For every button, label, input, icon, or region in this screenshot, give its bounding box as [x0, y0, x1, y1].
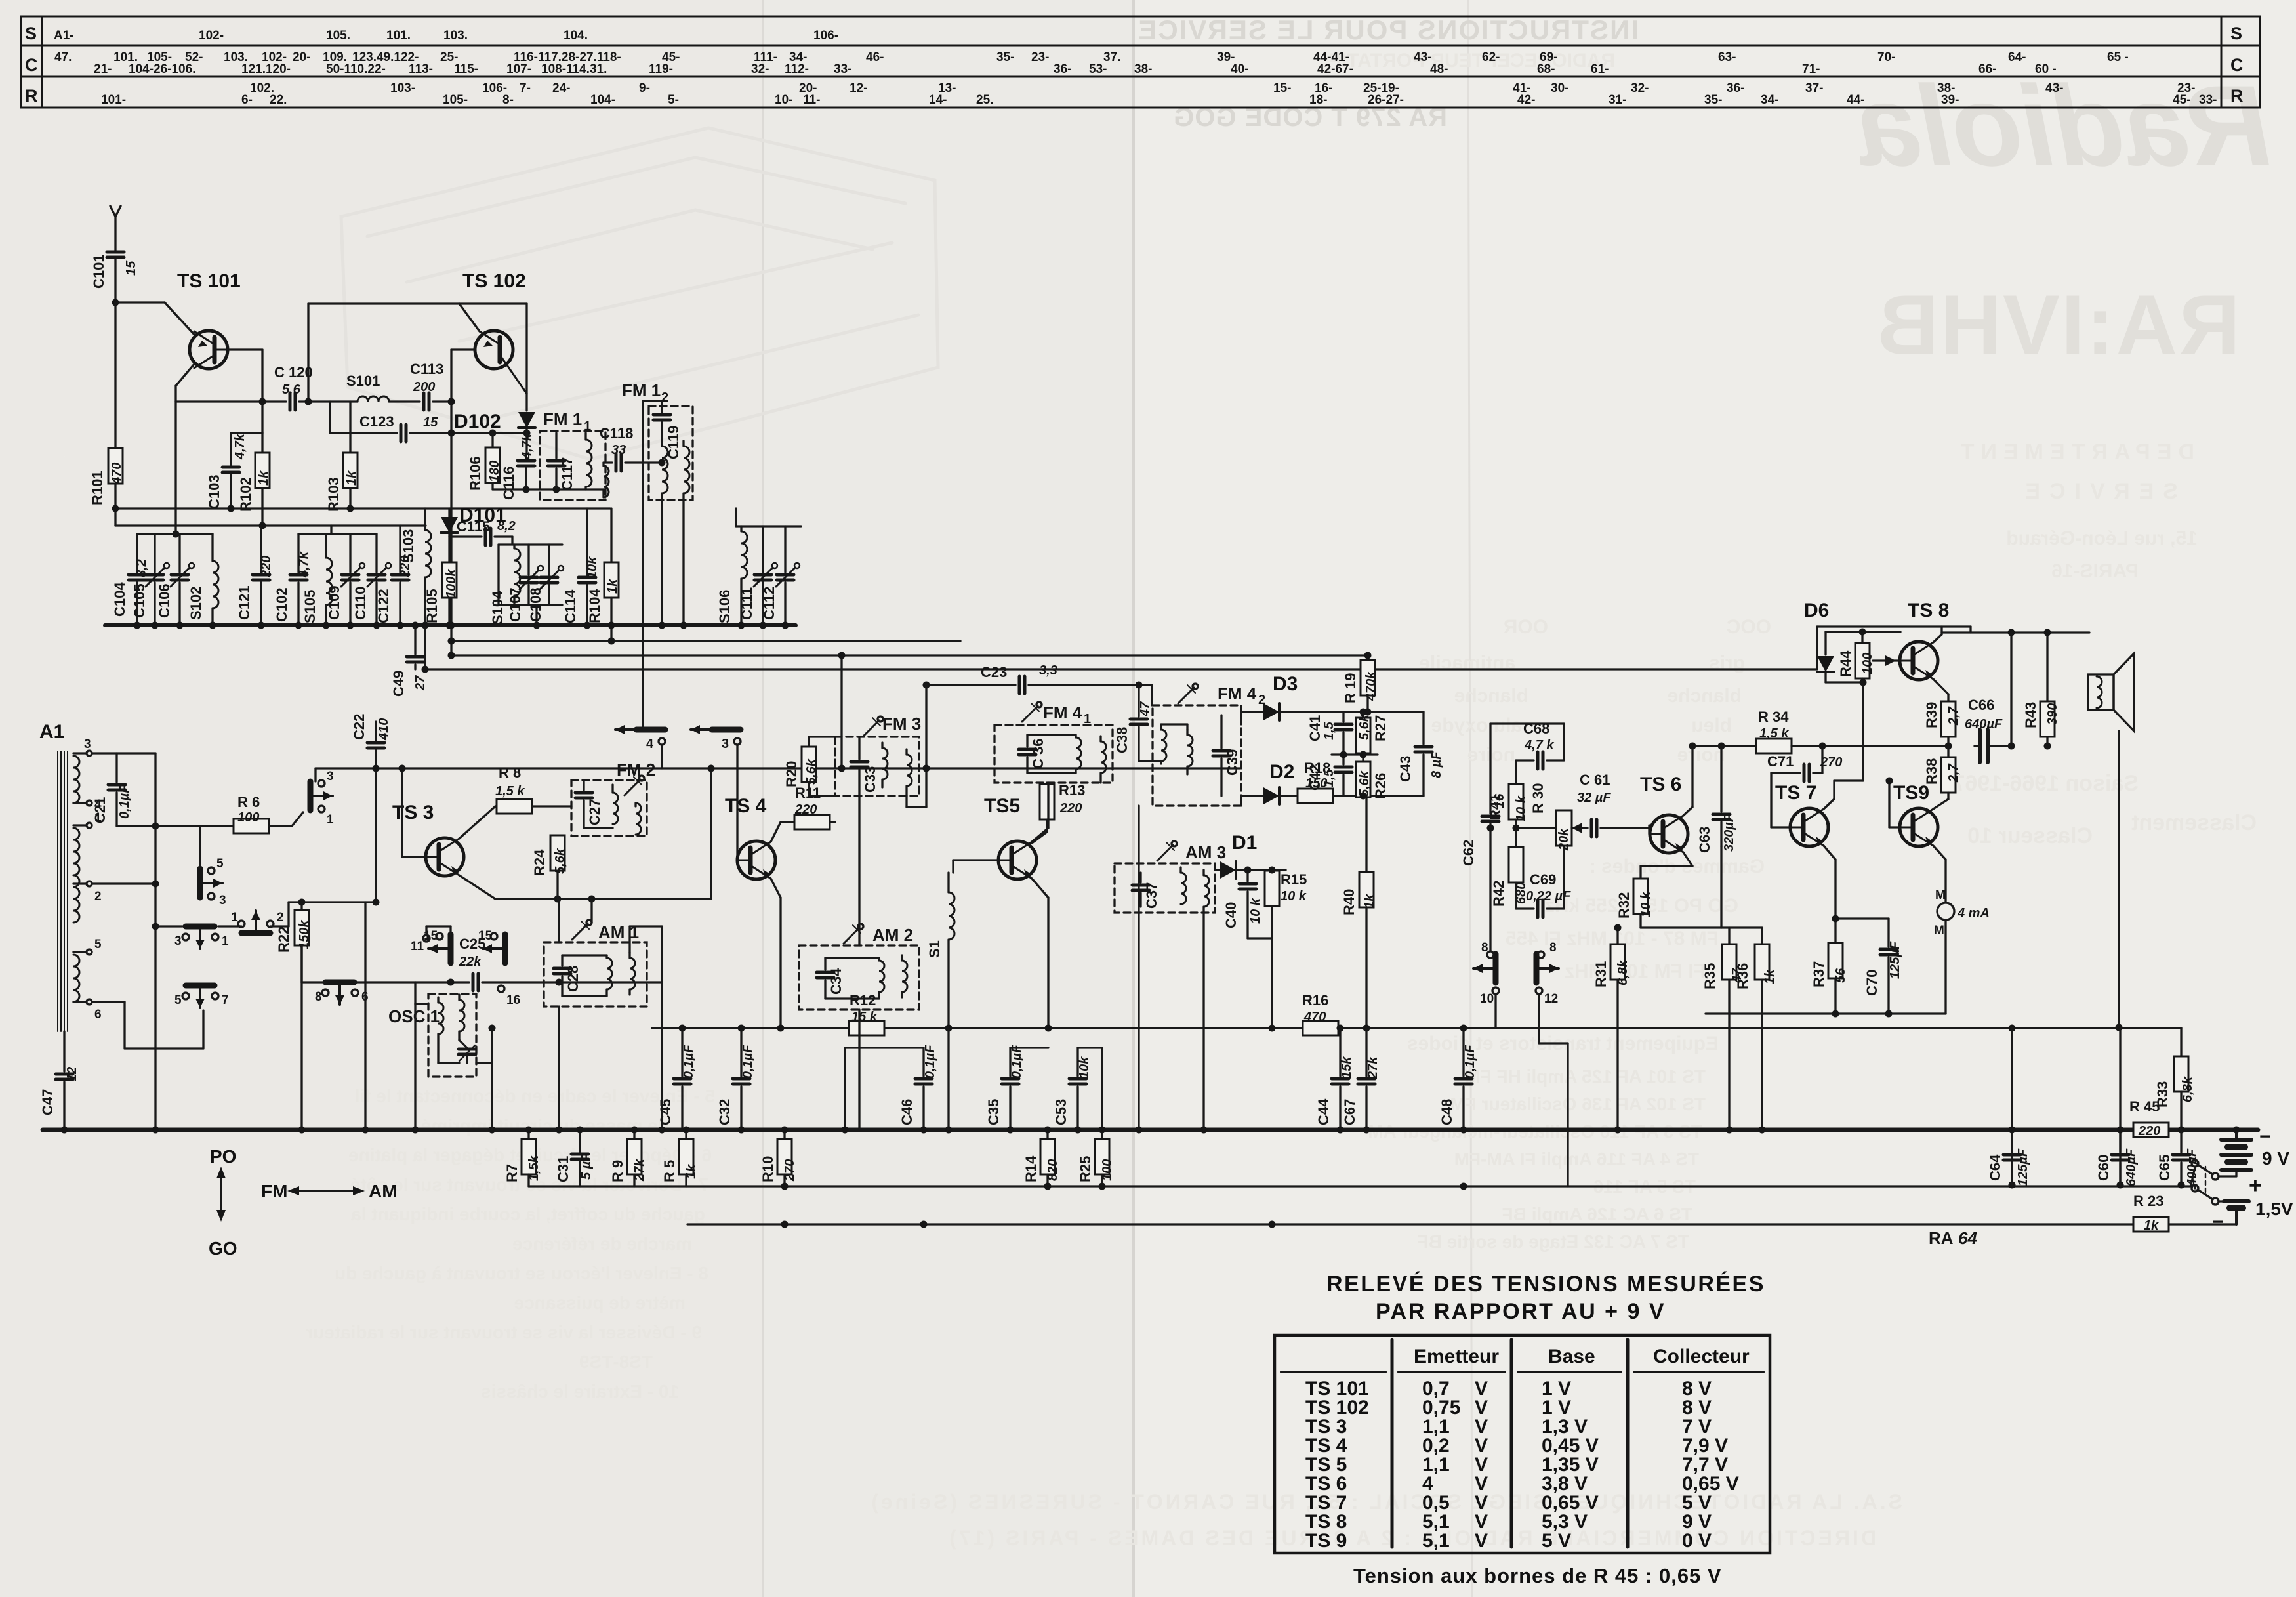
svg-text:PAR RAPPORT AU + 9 V: PAR RAPPORT AU + 9 V — [1376, 1299, 1666, 1324]
svg-text:1k: 1k — [344, 470, 359, 486]
svg-text:70-: 70- — [1877, 51, 1895, 64]
svg-text:104-26-106.: 104-26-106. — [129, 62, 195, 76]
svg-text:390: 390 — [2045, 703, 2060, 725]
svg-text:C62: C62 — [1460, 840, 1477, 866]
svg-text:1: 1 — [584, 419, 591, 434]
svg-text:200: 200 — [413, 380, 435, 394]
svg-text:C112: C112 — [761, 587, 777, 620]
svg-text:125µF: 125µF — [1888, 941, 1902, 979]
svg-text:47: 47 — [1138, 701, 1153, 717]
svg-text:10 k: 10 k — [1514, 795, 1528, 821]
svg-text:103-: 103- — [390, 81, 415, 95]
svg-text:42-: 42- — [1517, 93, 1535, 107]
svg-text:C105: C105 — [131, 583, 148, 618]
svg-text:C 120: C 120 — [274, 364, 313, 381]
svg-text:8: 8 — [1549, 941, 1557, 955]
svg-text:C47: C47 — [39, 1089, 56, 1115]
svg-text:48-: 48- — [1430, 62, 1448, 76]
svg-text:C103: C103 — [206, 474, 222, 509]
svg-text:9 - Dévisser la vis se trouvan: 9 - Dévisser la vis se trouvant sur le r… — [306, 1322, 702, 1342]
svg-text:64-: 64- — [2008, 51, 2026, 64]
svg-text:36-: 36- — [1054, 62, 1071, 76]
svg-text:C34: C34 — [828, 968, 844, 995]
svg-text:108-114.31.: 108-114.31. — [541, 62, 607, 76]
svg-text:15 k: 15 k — [851, 1010, 878, 1024]
svg-text:16: 16 — [506, 993, 520, 1007]
svg-text:C64: C64 — [1987, 1154, 2003, 1181]
svg-text:36-: 36- — [1727, 81, 1744, 95]
svg-text:20k: 20k — [1557, 828, 1571, 851]
svg-text:R106: R106 — [467, 456, 483, 491]
svg-text:TS 9: TS 9 — [1305, 1530, 1347, 1552]
svg-text:22k: 22k — [459, 955, 482, 969]
svg-text:C35: C35 — [985, 1099, 1002, 1125]
svg-text:R16: R16 — [1302, 992, 1328, 1008]
svg-text:V: V — [1475, 1530, 1488, 1552]
svg-text:antimacile: antimacile — [1419, 652, 1515, 674]
svg-text:18-: 18- — [1309, 93, 1327, 107]
svg-text:PO: PO — [210, 1146, 236, 1167]
svg-text:R 34: R 34 — [1758, 709, 1789, 725]
svg-text:Base: Base — [1548, 1346, 1595, 1367]
svg-text:C27: C27 — [586, 799, 603, 825]
svg-text:5 µF: 5 µF — [579, 1153, 594, 1180]
svg-text:SERVICE: SERVICE — [2016, 479, 2178, 504]
svg-text:R 23: R 23 — [2133, 1193, 2163, 1209]
svg-text:1,5k: 1,5k — [527, 1155, 541, 1181]
svg-text:C22: C22 — [351, 714, 367, 740]
svg-text:R 8: R 8 — [499, 764, 521, 781]
svg-text:10 k: 10 k — [1281, 889, 1307, 903]
svg-text:1k: 1k — [1763, 969, 1777, 984]
svg-text:101-: 101- — [101, 93, 126, 107]
svg-text:7: 7 — [222, 993, 229, 1007]
svg-text:TS 8: TS 8 — [1908, 600, 1949, 621]
svg-text:0,1µF: 0,1µF — [923, 1045, 937, 1079]
svg-text:1,5 k: 1,5 k — [1759, 726, 1789, 741]
svg-text:27k: 27k — [1366, 1056, 1380, 1079]
svg-text:35-: 35- — [1704, 93, 1722, 107]
svg-text:1: 1 — [327, 813, 334, 827]
svg-text:DEPARTEMENT: DEPARTEMENT — [1954, 440, 2194, 465]
svg-text:119-: 119- — [649, 62, 673, 76]
svg-text:C114: C114 — [562, 589, 579, 623]
svg-text:R105: R105 — [424, 589, 440, 623]
svg-text:43-: 43- — [2045, 81, 2063, 95]
svg-text:11-: 11- — [803, 93, 820, 107]
svg-text:R43: R43 — [2022, 702, 2039, 728]
svg-text:R102: R102 — [237, 477, 254, 512]
svg-text:15, rue Léon-Géraud: 15, rue Léon-Géraud — [2006, 528, 2198, 549]
svg-text:S106: S106 — [716, 590, 733, 623]
svg-text:C69: C69 — [1530, 871, 1556, 888]
svg-text:10k: 10k — [585, 556, 600, 579]
svg-text:TS8-TS9: TS8-TS9 — [579, 1352, 653, 1372]
svg-text:C: C — [2230, 55, 2244, 75]
svg-text:5,6: 5,6 — [282, 383, 301, 397]
svg-text:33-: 33- — [834, 62, 851, 76]
svg-text:33: 33 — [611, 443, 626, 457]
svg-text:1k: 1k — [684, 1164, 699, 1179]
svg-text:1k: 1k — [605, 579, 620, 594]
svg-text:5: 5 — [216, 857, 224, 871]
svg-text:R31: R31 — [1593, 961, 1609, 987]
svg-text:27k: 27k — [632, 1159, 647, 1182]
svg-text:100k: 100k — [444, 569, 459, 598]
svg-text:104-: 104- — [590, 93, 615, 107]
svg-text:10 - Extraire le châssis: 10 - Extraire le châssis — [481, 1381, 679, 1401]
svg-text:S: S — [25, 24, 37, 43]
svg-text:15-: 15- — [1273, 81, 1291, 95]
svg-text:TS 101 AF 125 Ampli HF FM: TS 101 AF 125 Ampli HF FM — [1465, 1066, 1706, 1087]
svg-text:R41: R41 — [1487, 794, 1504, 820]
svg-text:5,6k: 5,6k — [804, 758, 819, 785]
svg-text:R13: R13 — [1059, 782, 1085, 798]
svg-text:470: 470 — [1303, 1010, 1326, 1024]
svg-text:GO: GO — [209, 1238, 237, 1258]
svg-text:8,2: 8,2 — [497, 519, 516, 533]
svg-text:R20: R20 — [783, 761, 800, 787]
svg-text:TS 4: TS 4 — [725, 795, 767, 817]
svg-text:D2: D2 — [1269, 761, 1294, 783]
svg-text:1: 1 — [222, 934, 229, 948]
svg-text:61-: 61- — [1591, 62, 1609, 76]
svg-text:10k: 10k — [1077, 1056, 1092, 1079]
svg-text:C107: C107 — [507, 587, 523, 622]
svg-text:S105: S105 — [302, 590, 318, 623]
svg-text:R37: R37 — [1811, 961, 1827, 987]
svg-text:C106: C106 — [156, 583, 173, 618]
svg-text:1,5: 1,5 — [1322, 768, 1336, 787]
svg-text:C118: C118 — [600, 425, 633, 442]
svg-text:C40: C40 — [1223, 902, 1239, 928]
svg-text:C23: C23 — [981, 664, 1007, 680]
svg-text:47.: 47. — [54, 51, 72, 64]
svg-text:C46: C46 — [899, 1099, 915, 1125]
svg-text:C117: C117 — [559, 457, 575, 491]
svg-text:1k: 1k — [2144, 1218, 2159, 1233]
svg-text:64: 64 — [1958, 1228, 1977, 1248]
svg-text:10 k: 10 k — [1248, 898, 1263, 924]
svg-text:8: 8 — [1481, 941, 1488, 955]
svg-text:R14: R14 — [1023, 1155, 1039, 1182]
svg-text:A1-: A1- — [54, 29, 74, 43]
svg-text:26-27-: 26-27- — [1368, 93, 1404, 107]
svg-text:56: 56 — [1834, 968, 1848, 983]
svg-text:C 61: C 61 — [1580, 772, 1610, 788]
svg-text:39-: 39- — [1941, 93, 1959, 107]
svg-text:C70: C70 — [1864, 970, 1880, 996]
svg-text:3: 3 — [327, 770, 334, 783]
svg-text:0,1µF: 0,1µF — [682, 1045, 696, 1079]
svg-text:40-: 40- — [1231, 62, 1248, 76]
svg-text:71-: 71- — [1802, 62, 1820, 76]
svg-text:44-: 44- — [1847, 93, 1864, 107]
svg-text:35-: 35- — [996, 51, 1014, 64]
svg-text:C 36: C 36 — [1030, 739, 1046, 769]
svg-text:100: 100 — [1100, 1159, 1115, 1181]
svg-text:FM: FM — [261, 1181, 287, 1201]
svg-text:AM: AM — [369, 1181, 398, 1201]
svg-text:C111: C111 — [739, 587, 755, 620]
svg-text:42-67-: 42-67- — [1317, 62, 1353, 76]
svg-text:R38: R38 — [1923, 758, 1940, 785]
svg-text:FM 4: FM 4 — [1043, 703, 1082, 722]
svg-text:10 k: 10 k — [1639, 891, 1653, 917]
svg-text:220: 220 — [1059, 801, 1082, 816]
svg-text:R40: R40 — [1341, 889, 1357, 915]
svg-text:+: + — [2249, 1173, 2262, 1198]
svg-text:TS 102: TS 102 — [462, 270, 526, 292]
svg-text:270: 270 — [783, 1159, 797, 1182]
svg-text:A1: A1 — [39, 721, 64, 743]
svg-text:270: 270 — [1820, 755, 1842, 770]
svg-text:FM 2: FM 2 — [617, 760, 655, 779]
svg-text:R27: R27 — [1372, 715, 1389, 741]
svg-text:R44: R44 — [1837, 650, 1854, 677]
svg-text:M: M — [1935, 888, 1946, 902]
svg-text:4,7k: 4,7k — [520, 433, 535, 460]
svg-text:C71: C71 — [1767, 753, 1794, 770]
svg-text:10: 10 — [1480, 992, 1494, 1006]
svg-text:DIRECTION COMMERCIALE RADIOLA: DIRECTION COMMERCIALE RADIOLA : 2 A 8, R… — [947, 1526, 1876, 1550]
svg-text:TS 4 AF 116 Ampli FI AM-FM: TS 4 AF 116 Ampli FI AM-FM — [1454, 1149, 1699, 1169]
svg-text:470k: 470k — [1364, 671, 1378, 701]
svg-text:37-: 37- — [1805, 81, 1823, 95]
svg-text:C63: C63 — [1696, 827, 1713, 853]
svg-text:C102: C102 — [274, 587, 290, 622]
svg-text:TS9: TS9 — [1893, 782, 1929, 804]
svg-text:S: S — [2230, 24, 2242, 43]
svg-text:C122: C122 — [375, 589, 392, 623]
svg-text:OOC: OOC — [1727, 616, 1771, 638]
svg-text:30-: 30- — [1551, 81, 1568, 95]
svg-text:R: R — [25, 86, 38, 106]
svg-text:0 V: 0 V — [1682, 1530, 1712, 1552]
svg-text:R 45: R 45 — [2129, 1098, 2160, 1115]
svg-text:5 V: 5 V — [1542, 1530, 1571, 1552]
svg-text:TS 3: TS 3 — [392, 802, 434, 823]
svg-text:R7: R7 — [504, 1164, 520, 1182]
svg-text:R 9: R 9 — [609, 1160, 626, 1182]
svg-text:INSTRUCTIONS POUR LE SERVICE: INSTRUCTIONS POUR LE SERVICE — [1137, 14, 1639, 45]
svg-text:−: − — [2212, 1211, 2224, 1233]
svg-text:21-: 21- — [94, 62, 112, 76]
svg-text:2: 2 — [94, 890, 102, 903]
svg-text:50-110.22-: 50-110.22- — [326, 62, 386, 76]
svg-text:4,7 k: 4,7 k — [1524, 738, 1554, 753]
svg-text:3: 3 — [722, 737, 729, 751]
svg-text:C60: C60 — [2095, 1155, 2112, 1181]
svg-text:R103: R103 — [325, 477, 342, 512]
svg-text:125µF: 125µF — [2016, 1148, 2030, 1186]
svg-text:C32: C32 — [716, 1099, 733, 1125]
svg-text:RA: RA — [1929, 1228, 1954, 1248]
svg-text:15k: 15k — [1340, 1056, 1354, 1079]
svg-text:220: 220 — [259, 556, 274, 578]
svg-text:C48: C48 — [1439, 1099, 1455, 1125]
svg-text:S104: S104 — [489, 591, 506, 625]
svg-text:Radiola: Radiola — [1856, 62, 2271, 190]
svg-text:C110: C110 — [352, 587, 369, 620]
svg-text:11: 11 — [411, 940, 424, 953]
svg-text:32-: 32- — [751, 62, 769, 76]
svg-text:R25: R25 — [1077, 1156, 1094, 1182]
svg-text:R24: R24 — [531, 849, 548, 876]
svg-text:31-: 31- — [1609, 93, 1626, 107]
svg-text:S1: S1 — [926, 940, 943, 958]
svg-text:5,1: 5,1 — [1422, 1530, 1450, 1552]
svg-text:AM 2: AM 2 — [872, 925, 913, 945]
svg-text:C68: C68 — [1523, 720, 1549, 737]
svg-text:OOR: OOR — [1503, 616, 1548, 638]
svg-text:gauche du coffret, la courbe i: gauche du coffret, la courbe indiquant l… — [351, 1204, 705, 1224]
svg-text:C42: C42 — [1307, 764, 1323, 791]
svg-text:R39: R39 — [1923, 702, 1940, 728]
svg-text:PARIS-16: PARIS-16 — [2051, 560, 2139, 582]
svg-text:C37: C37 — [1143, 882, 1160, 909]
svg-text:Collecteur: Collecteur — [1653, 1346, 1750, 1367]
svg-text:6: 6 — [94, 1008, 102, 1022]
svg-text:D102: D102 — [454, 411, 501, 432]
svg-text:C31: C31 — [555, 1156, 571, 1182]
svg-text:1,5V: 1,5V — [2255, 1199, 2293, 1219]
svg-text:C44: C44 — [1315, 1098, 1332, 1125]
svg-text:TS 102 AF 136 Oscillateur: TS 102 AF 136 Oscillateur FM — [1450, 1094, 1706, 1114]
svg-text:2,7: 2,7 — [1946, 706, 1961, 726]
svg-text:0,1µF: 0,1µF — [117, 785, 132, 819]
svg-text:4: 4 — [646, 737, 654, 751]
svg-text:640µF: 640µF — [1965, 717, 2003, 732]
svg-text:C66: C66 — [1968, 697, 1994, 713]
svg-text:43-: 43- — [1414, 51, 1431, 64]
svg-text:FI FM 10,7 MHz: FI FM 10,7 MHz — [1565, 961, 1706, 982]
svg-text:R10: R10 — [760, 1156, 776, 1182]
svg-text:blanche: blanche — [1668, 685, 1742, 707]
svg-text:gris: gris — [1709, 652, 1745, 674]
svg-text:TS 6: TS 6 — [1640, 774, 1681, 795]
svg-text:0,1µF: 0,1µF — [1010, 1045, 1024, 1079]
svg-text:66-: 66- — [1978, 62, 1996, 76]
svg-text:45-: 45- — [2173, 93, 2190, 107]
svg-text:S.A. LA RADIOTECHNIQUE - SIE: S.A. LA RADIOTECHNIQUE - SIEGE SOCIAL : … — [869, 1490, 1902, 1514]
svg-text:14-: 14- — [929, 93, 947, 107]
svg-text:12: 12 — [65, 1067, 79, 1081]
svg-text:53-: 53- — [1089, 62, 1107, 76]
svg-text:2: 2 — [277, 911, 284, 924]
svg-text:S103: S103 — [400, 529, 417, 563]
svg-text:C21: C21 — [92, 797, 108, 823]
svg-text:4,7k: 4,7k — [233, 433, 247, 460]
svg-text:OSC 1: OSC 1 — [388, 1006, 440, 1026]
svg-text:68-: 68- — [1537, 62, 1555, 76]
svg-text:Classement: Classement — [2131, 810, 2257, 835]
svg-text:104.: 104. — [564, 29, 588, 43]
svg-text:20-: 20- — [293, 51, 310, 64]
svg-text:RA:IVHB: RA:IVHB — [1876, 277, 2240, 373]
svg-text:3: 3 — [84, 737, 91, 751]
svg-text:TS 101: TS 101 — [177, 270, 241, 292]
svg-text:220: 220 — [794, 802, 817, 817]
svg-text:0,1µF: 0,1µF — [1463, 1045, 1477, 1079]
svg-text:113-: 113- — [409, 62, 433, 76]
svg-text:R101: R101 — [89, 470, 106, 505]
svg-text:4 mA: 4 mA — [1957, 906, 1990, 921]
svg-text:marche de référence: marche de référence — [512, 1234, 692, 1254]
svg-text:180: 180 — [487, 461, 502, 482]
svg-text:S101: S101 — [346, 373, 380, 389]
svg-text:12-: 12- — [850, 81, 867, 95]
svg-text:15: 15 — [423, 415, 438, 430]
svg-text:112-: 112- — [785, 62, 809, 76]
svg-text:63-: 63- — [1718, 51, 1736, 64]
svg-text:C113: C113 — [410, 361, 443, 377]
svg-text:Tension aux bornes de R 45 : 0: Tension aux bornes de R 45 : 0,65 V — [1353, 1564, 1722, 1587]
svg-text:C39: C39 — [1224, 749, 1240, 776]
svg-text:640µF: 640µF — [2124, 1148, 2139, 1186]
svg-text:15: 15 — [478, 929, 493, 943]
svg-text:105.: 105. — [326, 29, 350, 43]
svg-text:4,7k: 4,7k — [297, 551, 311, 578]
svg-text:R36: R36 — [1734, 963, 1751, 989]
svg-text:60 -: 60 - — [2035, 62, 2057, 76]
svg-text:33-: 33- — [2199, 93, 2217, 107]
svg-text:12: 12 — [1544, 992, 1558, 1006]
svg-text:150k: 150k — [297, 920, 312, 949]
svg-text:de masse du circuit imprimé: de masse du circuit imprimé — [421, 1115, 669, 1136]
svg-text:FM 4: FM 4 — [1218, 684, 1257, 703]
svg-text:27: 27 — [413, 675, 428, 691]
svg-text:3,3: 3,3 — [1039, 663, 1057, 678]
svg-text:6,8k: 6,8k — [2181, 1076, 2195, 1102]
svg-text:1,5 k: 1,5 k — [495, 784, 525, 798]
svg-text:410: 410 — [377, 718, 391, 741]
svg-text:32-: 32- — [1631, 81, 1649, 95]
svg-text:15: 15 — [124, 260, 138, 276]
svg-text:107-: 107- — [506, 62, 531, 76]
svg-text:C108: C108 — [527, 587, 544, 622]
svg-text:D6: D6 — [1804, 600, 1829, 621]
svg-text:C28: C28 — [565, 966, 581, 992]
svg-text:R22: R22 — [276, 926, 292, 953]
svg-text:TS 7 AC 132 Etage de sorti: TS 7 AC 132 Etage de sortie BF — [1418, 1232, 1689, 1252]
svg-text:6,8k: 6,8k — [1616, 959, 1630, 985]
svg-text:Emetteur: Emetteur — [1414, 1346, 1499, 1367]
svg-text:−: − — [2259, 1126, 2271, 1148]
svg-text:blanche: blanche — [1454, 685, 1528, 707]
svg-text:5,6k: 5,6k — [553, 848, 567, 874]
svg-text:8-: 8- — [502, 93, 514, 107]
svg-text:9 V: 9 V — [2262, 1148, 2289, 1169]
svg-text:100: 100 — [1860, 653, 1875, 674]
svg-text:TS5: TS5 — [984, 795, 1020, 817]
svg-text:1: 1 — [231, 911, 238, 924]
svg-text:R 5: R 5 — [661, 1160, 678, 1182]
svg-text:23-: 23- — [1031, 51, 1049, 64]
svg-text:6-: 6- — [241, 93, 253, 107]
svg-text:0,1µF: 0,1µF — [741, 1045, 755, 1079]
svg-text:TS 7: TS 7 — [1775, 782, 1816, 804]
svg-text:R26: R26 — [1372, 773, 1389, 799]
svg-text:1k: 1k — [256, 470, 271, 486]
svg-text:115-: 115- — [454, 62, 478, 76]
svg-text:C65: C65 — [2156, 1155, 2173, 1181]
svg-text:5,6k: 5,6k — [1357, 714, 1372, 740]
svg-text:C45: C45 — [657, 1099, 674, 1125]
svg-text:D3: D3 — [1273, 673, 1298, 695]
svg-text:121.120-: 121.120- — [241, 62, 291, 76]
svg-text:R 30: R 30 — [1530, 783, 1546, 814]
